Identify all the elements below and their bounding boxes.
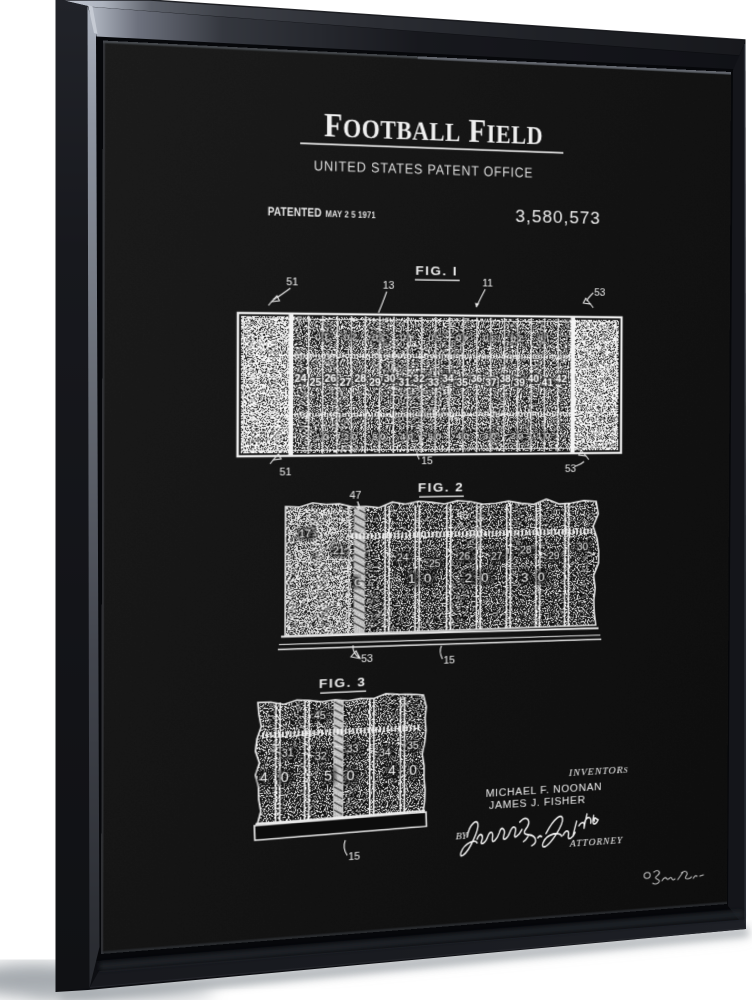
svg-text:24: 24	[294, 374, 307, 385]
svg-text:3 0: 3 0	[483, 333, 496, 343]
svg-text:28: 28	[354, 374, 366, 385]
svg-text:33: 33	[428, 378, 440, 389]
svg-text:45: 45	[314, 711, 326, 723]
svg-text:13: 13	[383, 280, 395, 291]
svg-text:3: 3	[521, 571, 528, 585]
svg-text:2 0: 2 0	[510, 432, 523, 442]
svg-text:47: 47	[349, 490, 361, 501]
svg-text:30: 30	[577, 542, 588, 553]
svg-text:5 0: 5 0	[428, 332, 442, 342]
svg-text:45: 45	[449, 414, 459, 424]
svg-text:15: 15	[348, 851, 360, 863]
svg-text:47: 47	[249, 372, 261, 383]
svg-text:FIG. 3: FIG. 3	[319, 675, 367, 692]
svg-text:0: 0	[409, 764, 417, 779]
svg-text:27: 27	[340, 378, 352, 389]
svg-text:3 0: 3 0	[483, 432, 496, 442]
svg-text:4 0: 4 0	[456, 432, 469, 442]
svg-text:0: 0	[424, 572, 432, 587]
svg-text:43: 43	[407, 339, 417, 349]
svg-text:4 0: 4 0	[456, 332, 469, 342]
svg-text:3 0: 3 0	[372, 332, 386, 342]
svg-text:26: 26	[459, 551, 471, 562]
svg-text:FIG. 2: FIG. 2	[418, 481, 464, 496]
svg-text:27: 27	[491, 552, 502, 563]
svg-text:2 0: 2 0	[344, 433, 358, 443]
svg-text:35: 35	[407, 741, 419, 752]
svg-text:G: G	[354, 578, 362, 589]
svg-text:35: 35	[457, 378, 468, 389]
svg-text:4 0: 4 0	[400, 433, 414, 443]
svg-text:31: 31	[399, 378, 411, 389]
svg-text:51: 51	[279, 467, 291, 478]
svg-text:3,580,573: 3,580,573	[515, 208, 601, 229]
svg-text:41: 41	[542, 378, 553, 389]
svg-text:36: 36	[471, 374, 482, 385]
svg-text:53: 53	[565, 464, 576, 475]
svg-text:37: 37	[485, 378, 496, 389]
svg-text:21: 21	[250, 340, 262, 351]
svg-text:39: 39	[514, 378, 525, 389]
svg-text:30: 30	[384, 374, 396, 385]
svg-text:24: 24	[397, 553, 409, 564]
svg-text:29: 29	[369, 378, 381, 389]
svg-text:53: 53	[594, 288, 605, 299]
svg-text:33: 33	[347, 744, 359, 756]
svg-text:28: 28	[520, 545, 531, 556]
svg-text:0: 0	[538, 570, 545, 584]
svg-text:34: 34	[442, 374, 454, 385]
svg-text:4: 4	[260, 771, 268, 786]
svg-text:23: 23	[589, 345, 600, 356]
svg-text:1: 1	[408, 572, 416, 587]
svg-text:25: 25	[429, 559, 441, 570]
svg-text:11: 11	[482, 278, 493, 289]
svg-text:1 0: 1 0	[315, 433, 329, 443]
svg-text:25: 25	[310, 377, 322, 388]
svg-text:29: 29	[548, 551, 559, 562]
svg-text:51: 51	[286, 277, 298, 288]
svg-text:1 0: 1 0	[537, 432, 550, 442]
svg-text:4: 4	[388, 764, 396, 779]
svg-text:FIG. I: FIG. I	[416, 264, 459, 279]
svg-text:32: 32	[315, 751, 327, 763]
svg-text:49: 49	[598, 366, 609, 377]
svg-text:17: 17	[249, 413, 261, 424]
svg-text:0: 0	[281, 771, 289, 786]
svg-text:2 0: 2 0	[510, 333, 523, 343]
svg-text:40: 40	[528, 374, 539, 385]
svg-text:38: 38	[499, 374, 510, 385]
svg-text:53: 53	[361, 654, 373, 665]
svg-text:21: 21	[333, 546, 345, 557]
svg-text:1 0: 1 0	[537, 333, 550, 343]
svg-text:31: 31	[282, 748, 294, 760]
svg-text:5: 5	[324, 769, 332, 784]
svg-text:26: 26	[325, 374, 337, 385]
svg-text:45: 45	[457, 511, 469, 522]
svg-text:3 0: 3 0	[372, 433, 386, 443]
svg-text:1 0: 1 0	[315, 331, 329, 341]
svg-text:2: 2	[464, 571, 471, 585]
svg-text:19: 19	[594, 395, 605, 406]
svg-text:BY: BY	[456, 832, 469, 843]
svg-text:17: 17	[299, 529, 311, 540]
svg-text:2 0: 2 0	[344, 331, 358, 341]
svg-text:15: 15	[443, 655, 455, 666]
svg-text:0: 0	[481, 571, 488, 585]
svg-text:15: 15	[421, 456, 433, 467]
svg-text:34: 34	[379, 748, 391, 759]
svg-text:42: 42	[556, 374, 567, 385]
svg-text:5 0: 5 0	[428, 433, 442, 443]
svg-text:32: 32	[413, 374, 425, 385]
svg-text:0: 0	[347, 769, 355, 784]
